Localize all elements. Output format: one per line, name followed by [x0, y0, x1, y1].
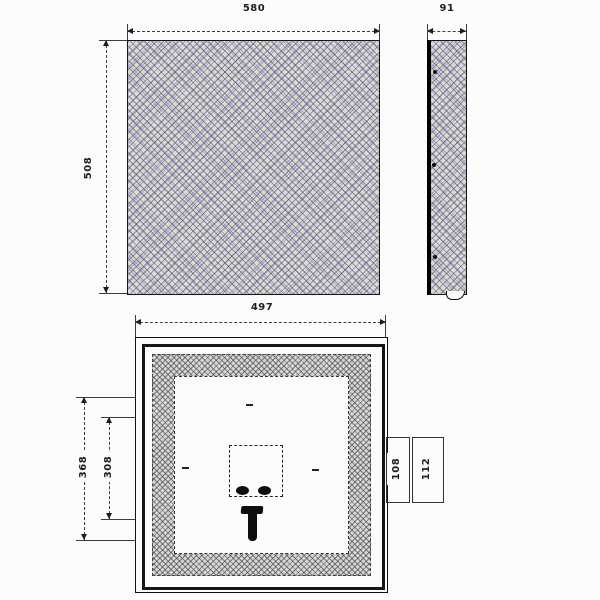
junction-box-gland-left: [236, 486, 249, 495]
technical-drawing-canvas: 580 508 91 497: [0, 0, 600, 600]
front-height-ext-top: [99, 40, 127, 41]
side-fixing-dot-1: [433, 70, 437, 74]
junction-box-gland-right: [258, 486, 271, 495]
cable-stem: [248, 513, 257, 541]
side-depth-dim-label: 91: [432, 4, 462, 14]
rear-width-ext-left: [135, 315, 136, 337]
front-height-dim-label-box: 508: [78, 152, 100, 184]
front-height-dim-line: [106, 40, 107, 293]
rear-left-inner-dim-label-box: 308: [98, 452, 120, 482]
rear-width-dim-label: 497: [236, 303, 288, 313]
side-bottom-foot: [446, 291, 465, 300]
front-height-ext-bottom: [99, 293, 127, 294]
rear-left-inner-dim-label: 308: [104, 456, 114, 478]
rear-centerline-tick-top: [246, 404, 253, 406]
rear-centerline-tick-left: [182, 467, 189, 469]
side-fixing-dot-3: [433, 255, 437, 259]
rear-left-outer-dim-label: 368: [79, 456, 89, 478]
front-width-dim-line: [127, 31, 380, 32]
front-panel-face: [127, 40, 380, 295]
rear-left-ext-inner-bottom: [101, 519, 135, 520]
rear-left-outer-arrow-bottom: [81, 534, 87, 540]
side-fixing-dot-2: [432, 163, 436, 167]
front-width-ext-left: [127, 24, 128, 40]
rear-width-dim-line: [135, 322, 386, 323]
rear-width-ext-right: [385, 315, 386, 337]
front-width-dim-label: 580: [228, 4, 280, 14]
rear-centerline-tick-right: [312, 469, 319, 471]
rear-left-outer-dim-label-box: 368: [73, 452, 95, 482]
rear-left-ext-outer-bottom: [76, 540, 135, 541]
front-width-ext-right: [379, 24, 380, 40]
side-depth-ext-left: [427, 24, 428, 40]
rear-left-inner-arrow-top: [106, 417, 112, 423]
rear-right-outer-dim-label-box: 112: [417, 453, 437, 485]
rear-right-outer-dim-label: 112: [422, 458, 432, 480]
side-depth-ext-right: [466, 24, 467, 40]
rear-left-inner-arrow-bottom: [106, 513, 112, 519]
rear-left-outer-arrow-top: [81, 397, 87, 403]
rear-right-inner-dim-label: 108: [392, 458, 402, 480]
front-height-dim-label: 508: [84, 157, 94, 179]
rear-right-inner-dim-label-box: 108: [387, 453, 407, 485]
